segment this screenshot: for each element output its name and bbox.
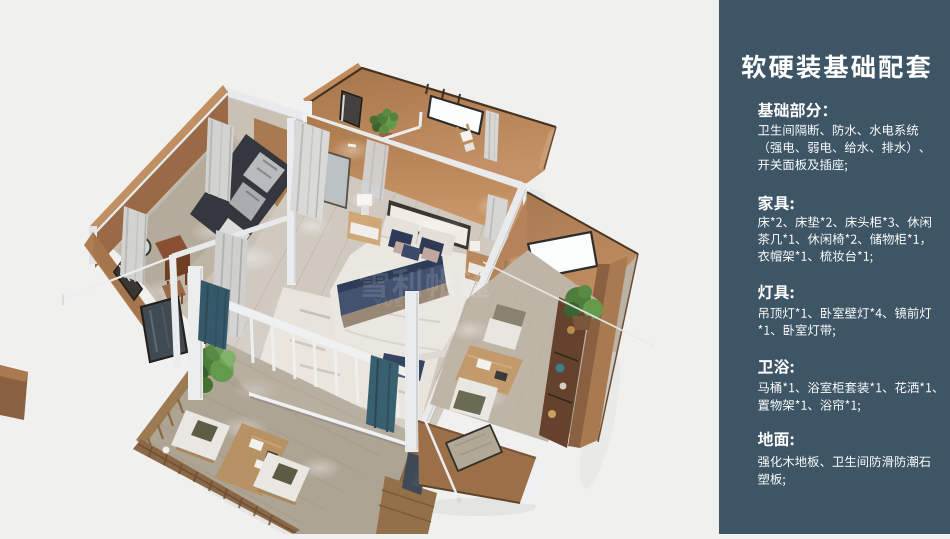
svg-text:YUELI TENT: YUELI TENT — [374, 297, 467, 309]
